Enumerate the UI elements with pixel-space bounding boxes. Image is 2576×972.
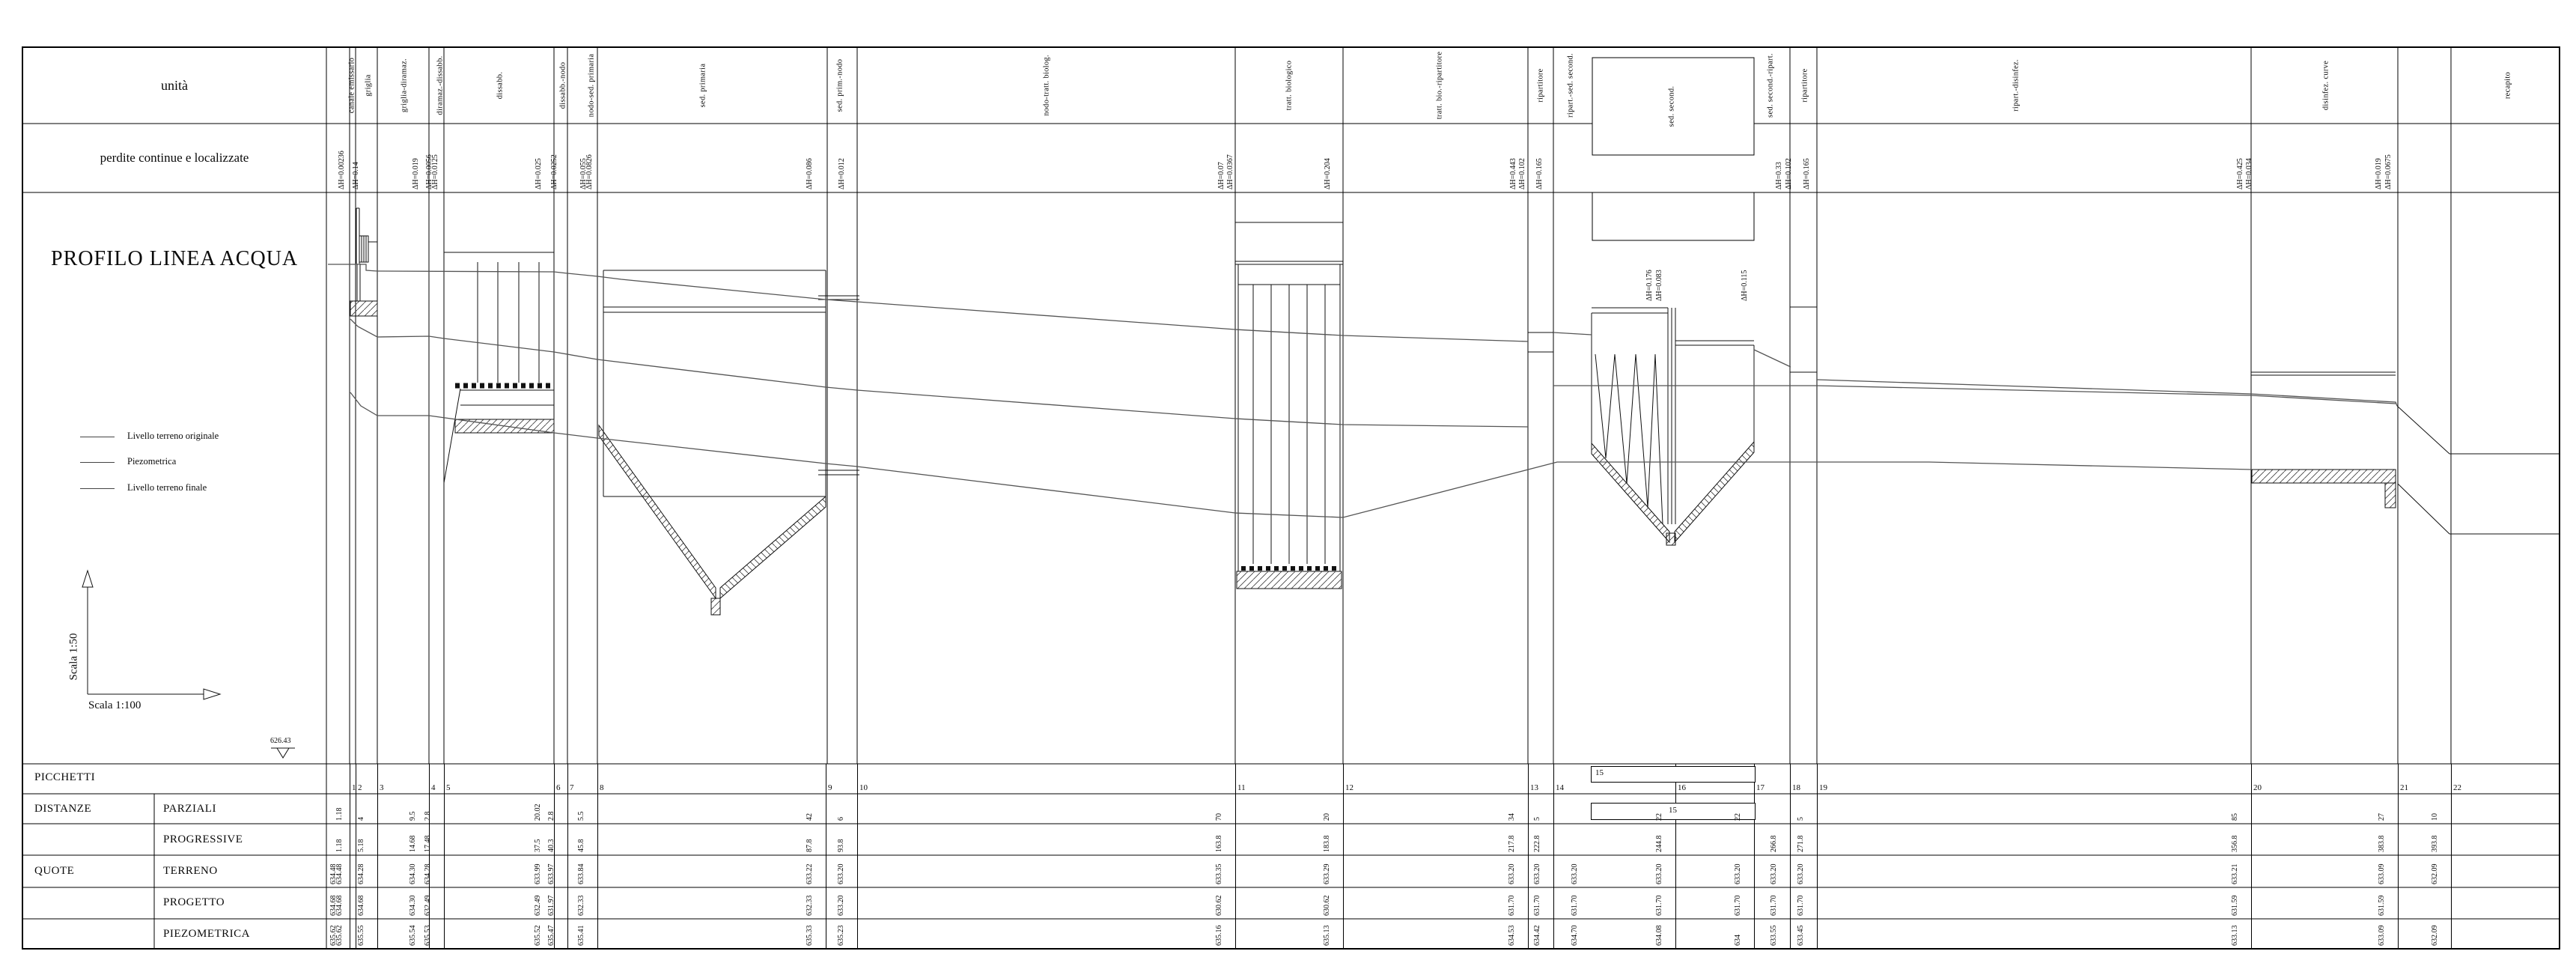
- elevation-piezometric-value: 634.53: [1508, 926, 1517, 947]
- distance-partial-value: 5.5: [577, 812, 586, 821]
- picket-number: 8: [600, 783, 604, 792]
- row-label-picchetti: PICCHETTI: [34, 771, 95, 784]
- picket-gridline: [1235, 764, 1236, 949]
- picket-number: 1: [352, 783, 356, 792]
- elevation-design-value: 631.70: [1797, 896, 1806, 917]
- distance-progressive-value: 244.8: [1655, 836, 1664, 853]
- picket-gridline: [429, 764, 430, 949]
- elevation-ground-value: 633.20: [837, 864, 846, 885]
- picket-number: 5: [446, 783, 451, 792]
- picket-gridline: [1754, 764, 1755, 949]
- picket-number: 3: [380, 783, 384, 792]
- elevation-ground-value: 633.99: [534, 864, 543, 885]
- picket-gridline: [1553, 764, 1554, 949]
- picket-number: 16: [1678, 783, 1686, 792]
- distance-progressive-value: 87.8: [806, 839, 814, 853]
- distance-progressive-value: 37.5: [534, 839, 543, 853]
- horizontal-scale-label: Scala 1:100: [88, 699, 141, 712]
- distance-progressive-value: 393.8: [2431, 836, 2440, 853]
- elevation-piezometric-value: 635.53: [424, 926, 433, 947]
- distance-progressive-value: 45.8: [577, 839, 586, 853]
- elevation-piezometric-value: 634: [1734, 935, 1743, 946]
- legend-label: Livello terreno originale: [127, 431, 219, 442]
- distance-progressive-value: 356.8: [2231, 836, 2240, 853]
- distance-partial-value: 10: [2431, 813, 2440, 821]
- elevation-design-value: 632.33: [806, 896, 814, 917]
- distance-partial-value: 27: [2378, 813, 2387, 821]
- unit-column-label: diramaz.-dissabb.: [436, 55, 445, 115]
- picket-gridline: [1343, 764, 1344, 949]
- elevation-ground-value: 633.84: [577, 864, 586, 885]
- elevation-design-value: 631.59: [2231, 896, 2240, 917]
- biological-treatment-tank: [1235, 222, 1343, 589]
- headloss-value: ΔH=0.019: [2375, 158, 2384, 189]
- distance-partial-value: 20.02: [534, 804, 543, 821]
- sed-second-offset-cells: [1592, 58, 1754, 240]
- picket-gridline: [857, 764, 858, 949]
- distance-partial-value: 5: [1533, 817, 1542, 821]
- headloss-value: ΔH=0.025: [535, 158, 543, 189]
- distance-progressive-value: 93.8: [837, 839, 846, 853]
- picket-number: 6: [556, 783, 561, 792]
- picket-gridline: [1528, 764, 1529, 949]
- distance-partial-value: 85: [2231, 813, 2240, 821]
- picket-15-label: 15: [1669, 806, 1677, 815]
- headloss-value: ΔH=0.0252: [550, 154, 559, 189]
- distance-progressive-value: 163.8: [1215, 836, 1224, 853]
- picket-gridline: [1817, 764, 1818, 949]
- headloss-value: ΔH=0.165: [1535, 158, 1544, 189]
- picket-gridline: [597, 764, 598, 949]
- picket-number: 18: [1792, 783, 1800, 792]
- unit-column-label: sed. prim.-nodo: [836, 59, 844, 112]
- elevation-ground-value: 633.20: [1797, 864, 1806, 885]
- elevation-ground-value: 633.35: [1215, 864, 1224, 885]
- table-grid: [22, 47, 2560, 949]
- row-label-terreno: TERRENO: [163, 865, 218, 878]
- elevation-ground-value: 633.20: [1734, 864, 1743, 885]
- picket-number: 9: [828, 783, 832, 792]
- distance-partial-value: 4: [357, 817, 366, 821]
- unit-column-label: sed. second.-ripart.: [1767, 53, 1775, 118]
- elevation-ground-value: 633.29: [1323, 864, 1332, 885]
- unit-column-label: ripartitore: [1801, 68, 1809, 102]
- elevation-piezometric-value: 632.09: [2431, 926, 2440, 947]
- picket-number: 19: [1819, 783, 1827, 792]
- page-title: PROFILO LINEA ACQUA: [51, 247, 298, 271]
- picket-number: 22: [2453, 783, 2461, 792]
- elevation-ground-value: 634.48: [335, 864, 344, 885]
- headloss-value: ΔH=0.14: [352, 162, 361, 189]
- elevation-piezometric-value: 634.70: [1571, 926, 1580, 947]
- elevation-ground-value: 633.20: [1770, 864, 1779, 885]
- elevation-design-value: 634.68: [335, 896, 344, 917]
- headloss-value: ΔH=0.102: [1518, 158, 1527, 189]
- elevation-ground-value: 633.20: [1508, 864, 1517, 885]
- vertical-scale-label: Scala 1:50: [68, 634, 81, 681]
- headloss-value: ΔH=0.115: [1741, 270, 1750, 301]
- elevation-design-value: 634.68: [357, 896, 366, 917]
- elevation-design-value: 631.70: [1770, 896, 1779, 917]
- headloss-value: ΔH=0.0125: [431, 154, 440, 189]
- picket-number: 12: [1345, 783, 1354, 792]
- distance-progressive-value: 271.8: [1797, 836, 1806, 853]
- distance-partial-value: 34: [1508, 813, 1517, 821]
- piezometric-line: [350, 319, 2396, 427]
- picket-number: 20: [2253, 783, 2262, 792]
- headloss-value: ΔH=0.07: [1217, 162, 1226, 189]
- row-label-piezometrica: PIEZOMETRICA: [163, 928, 250, 941]
- elevation-design-value: 631.97: [547, 896, 556, 917]
- distance-partial-value: 9.5: [409, 812, 418, 821]
- elevation-piezometric-value: 635.62: [335, 926, 344, 947]
- row-label-quote: QUOTE: [34, 865, 74, 878]
- benchmark-symbol: [271, 748, 295, 758]
- picket-gridline: [567, 764, 568, 949]
- headloss-value: ΔH=0.019: [412, 158, 421, 189]
- unit-column-label: nodo-sed. primaria: [588, 54, 596, 118]
- elevation-piezometric-value: 635.55: [357, 926, 366, 947]
- headloss-value: ΔH=0.00236: [338, 151, 347, 189]
- elevation-ground-value: 633.20: [1655, 864, 1664, 885]
- grit-chamber: [444, 252, 554, 483]
- elevation-piezometric-value: 635.33: [806, 926, 814, 947]
- unit-column-label: dissabb.-nodo: [559, 62, 567, 109]
- headloss-value: ΔH=0.0675: [2384, 154, 2393, 189]
- picket-gridline: [444, 764, 445, 949]
- distance-progressive-value: 40.3: [547, 839, 556, 853]
- elevation-ground-value: 633.20: [1533, 864, 1542, 885]
- headloss-value: ΔH=0.204: [1324, 158, 1333, 189]
- elevation-design-value: 631.70: [1508, 896, 1517, 917]
- unit-column-label: griglia: [365, 74, 373, 97]
- distance-progressive-value: 266.8: [1770, 836, 1779, 853]
- row-label-progressive: PROGRESSIVE: [163, 833, 243, 846]
- unit-column-label: griglia-diramaz.: [401, 58, 409, 112]
- elevation-ground-value: 633.22: [806, 864, 814, 885]
- picket-gridline: [2251, 764, 2252, 949]
- distance-progressive-value: 17.48: [424, 836, 433, 853]
- distance-partial-value: 2.8: [547, 812, 556, 821]
- elevation-design-value: 630.62: [1323, 896, 1332, 917]
- elevation-design-value: 631.59: [2378, 896, 2387, 917]
- elevation-ground-value: 634.30: [409, 864, 418, 885]
- elevation-piezometric-value: 634.42: [1533, 926, 1542, 947]
- unit-column-label: ripart.-sed. second.: [1567, 53, 1575, 118]
- elevation-piezometric-value: 635.47: [547, 926, 556, 947]
- distance-partial-value: 22: [1655, 813, 1664, 821]
- unit-column-label: nodo-tratt. biolog.: [1043, 55, 1051, 116]
- benchmark-elevation: 626.43: [270, 737, 291, 745]
- profile-linework: [0, 0, 2576, 972]
- secondary-sedimentation-tank: [1592, 308, 1754, 545]
- drawing-sheet: unità perdite continue e localizzate can…: [0, 0, 2576, 972]
- elevation-piezometric-value: 634.08: [1655, 926, 1664, 947]
- unit-column-label: tratt. bio.-ripartitore: [1436, 52, 1444, 120]
- legend-label: Piezometrica: [127, 456, 176, 467]
- final-ground-line: [350, 392, 2252, 517]
- picket-number: 13: [1530, 783, 1538, 792]
- elevation-ground-value: 633.20: [1571, 864, 1580, 885]
- distance-partial-value: 5: [1797, 817, 1806, 821]
- distribution-chamber-1: [1528, 332, 1553, 352]
- legend-label: Livello terreno finale: [127, 482, 207, 493]
- picket-number: 11: [1237, 783, 1246, 792]
- unit-column-label: ripartitore: [1537, 68, 1545, 102]
- row-label-distanze: DISTANZE: [34, 803, 91, 815]
- headloss-value: ΔH=0.086: [806, 158, 814, 189]
- elevation-design-value: 633.20: [837, 896, 846, 917]
- headloss-value: ΔH=0.0367: [1226, 154, 1235, 189]
- elevation-design-value: 631.70: [1571, 896, 1580, 917]
- headloss-value: ΔH=0.165: [1803, 158, 1812, 189]
- elevation-piezometric-value: 633.09: [2378, 926, 2387, 947]
- picket-number: 10: [859, 783, 868, 792]
- distance-progressive-value: 183.8: [1323, 836, 1332, 853]
- inlet-channel-and-screen: [350, 208, 377, 316]
- distance-progressive-value: 5.18: [357, 839, 366, 853]
- picket-number: 4: [431, 783, 436, 792]
- elevation-design-value: 631.70: [1734, 896, 1743, 917]
- unit-column-label: ripart.-disinfez.: [2012, 59, 2021, 112]
- distance-progressive-value: 383.8: [2378, 836, 2387, 853]
- distance-partial-value: 2.8: [424, 812, 433, 821]
- elevation-piezometric-value: 635.52: [534, 926, 543, 947]
- unit-column-label: tratt. biologico: [1285, 61, 1294, 111]
- row-label-progetto: PROGETTO: [163, 896, 225, 909]
- elevation-ground-value: 634.28: [357, 864, 366, 885]
- elevation-piezometric-value: 635.23: [837, 926, 846, 947]
- elevation-design-value: 631.70: [1533, 896, 1542, 917]
- picket-gridline: [350, 764, 350, 949]
- headloss-value: ΔH=0.0826: [585, 154, 594, 189]
- elevation-piezometric-value: 633.13: [2231, 926, 2240, 947]
- picket-15-label: 15: [1595, 768, 1604, 777]
- distance-partial-value: 20: [1323, 813, 1332, 821]
- unit-column-label: disinfez. curve: [2322, 61, 2330, 110]
- headloss-value: ΔH=0.176: [1645, 270, 1654, 301]
- scale-arrows: [82, 571, 220, 699]
- elevation-design-value: 631.70: [1655, 896, 1664, 917]
- headloss-value: ΔH=0.012: [838, 158, 847, 189]
- elevation-ground-value: 634.28: [424, 864, 433, 885]
- row-label-parziali: PARZIALI: [163, 803, 216, 815]
- distance-partial-value: 22: [1734, 813, 1743, 821]
- distance-partial-value: 1.18: [335, 808, 344, 821]
- picket-15-bracket-top: 15: [1591, 766, 1756, 783]
- elevation-piezometric-value: 635.16: [1215, 926, 1224, 947]
- elevation-design-value: 632.49: [424, 896, 433, 917]
- headloss-value: ΔH=0.102: [1785, 158, 1794, 189]
- headloss-value: ΔH=0.083: [1655, 270, 1664, 301]
- elevation-piezometric-value: 633.55: [1770, 926, 1779, 947]
- picket-gridline: [1675, 764, 1676, 949]
- units-header-cell: unità: [22, 47, 326, 124]
- elevation-design-value: 632.33: [577, 896, 586, 917]
- elevation-ground-value: 633.21: [2231, 864, 2240, 885]
- picket-gridline: [826, 764, 826, 949]
- elevation-design-value: 630.62: [1215, 896, 1224, 917]
- picket-number: 2: [358, 783, 362, 792]
- distance-progressive-value: 217.8: [1508, 836, 1517, 853]
- distance-progressive-value: 1.18: [335, 839, 344, 853]
- picket-number: 7: [570, 783, 574, 792]
- elevation-ground-value: 632.09: [2431, 864, 2440, 885]
- headloss-value: ΔH=0.425: [2236, 158, 2245, 189]
- headloss-value: ΔH=0.034: [2245, 158, 2254, 189]
- distance-progressive-value: 14.68: [409, 836, 418, 853]
- picket-gridline: [554, 764, 555, 949]
- unit-column-label: dissabb.: [496, 72, 505, 100]
- distance-progressive-value: 222.8: [1533, 836, 1542, 853]
- distance-partial-value: 42: [806, 813, 814, 821]
- headloss-value: ΔH=0.443: [1509, 158, 1518, 189]
- picket-gridline: [1790, 764, 1791, 949]
- unit-column-label: recapito: [2504, 72, 2512, 99]
- elevation-piezometric-value: 635.13: [1323, 926, 1332, 947]
- unit-column-label: sed. second.: [1668, 86, 1676, 127]
- picket-number: 17: [1756, 783, 1764, 792]
- unit-column-label: sed. primaria: [699, 64, 707, 108]
- original-ground-line: [328, 264, 2397, 406]
- distance-partial-value: 70: [1215, 813, 1224, 821]
- unit-column-label: canale emissario: [348, 58, 356, 113]
- legend-line-sample: [80, 437, 115, 437]
- legend-line-sample: [80, 462, 115, 463]
- elevation-piezometric-value: 635.41: [577, 926, 586, 947]
- headloss-header-cell: perdite continue e localizzate: [22, 124, 326, 192]
- elevation-design-value: 634.30: [409, 896, 418, 917]
- headloss-value: ΔH=0.33: [1775, 162, 1784, 189]
- picket-gridline: [2451, 764, 2452, 949]
- elevation-piezometric-value: 633.45: [1797, 926, 1806, 947]
- picket-number: 14: [1556, 783, 1564, 792]
- elevation-ground-value: 633.97: [547, 864, 556, 885]
- legend-line-sample: [80, 488, 115, 489]
- distance-partial-value: 6: [837, 817, 846, 821]
- distribution-chamber-2: [1790, 307, 1817, 372]
- picket-gridline: [377, 764, 378, 949]
- picket-15-bracket-bottom: 15: [1591, 803, 1756, 820]
- elevation-ground-value: 633.09: [2378, 864, 2387, 885]
- picket-number: 21: [2400, 783, 2408, 792]
- elevation-piezometric-value: 635.54: [409, 926, 418, 947]
- elevation-design-value: 632.49: [534, 896, 543, 917]
- picket-gridline: [2398, 764, 2399, 949]
